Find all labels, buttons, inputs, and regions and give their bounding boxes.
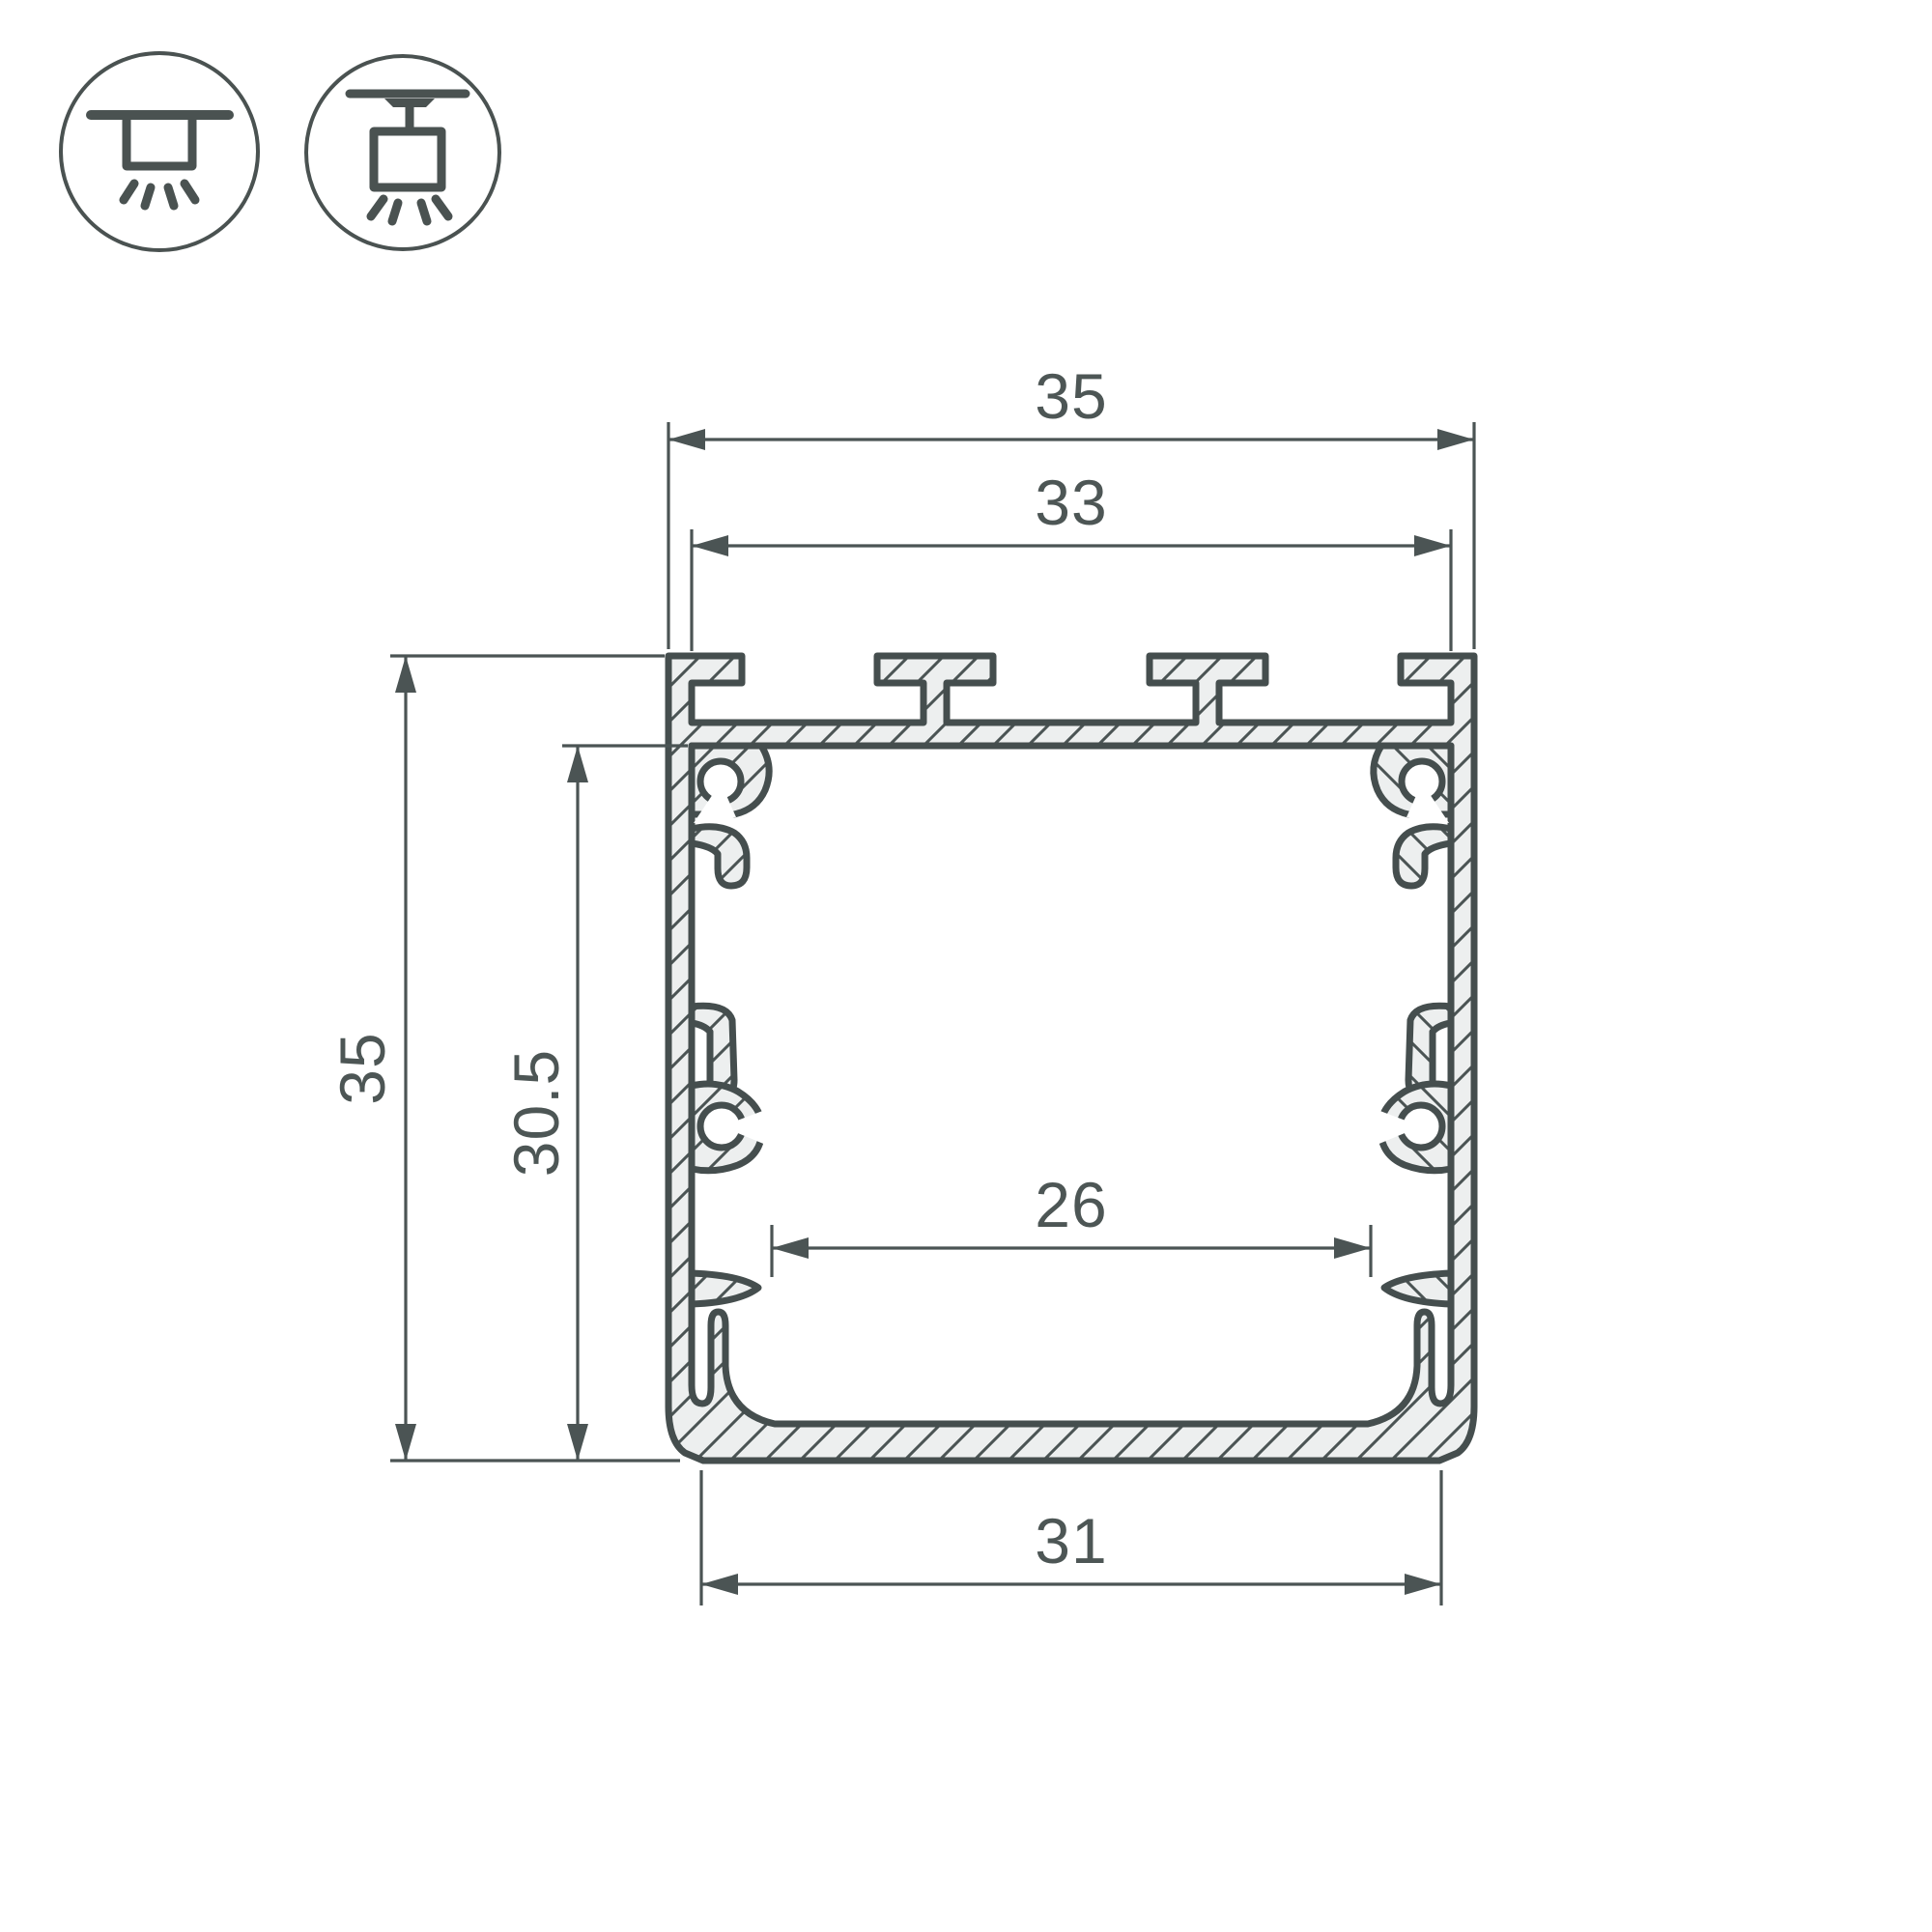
dim-overall-height: 35 bbox=[327, 1032, 398, 1104]
dimension-arrows bbox=[395, 429, 1474, 1595]
wall-inner-features-right bbox=[1370, 746, 1451, 1304]
surface-mount-icon bbox=[61, 53, 258, 250]
profile-cross-section bbox=[668, 656, 1474, 1461]
technical-drawing-page: 35 33 35 30.5 26 31 bbox=[0, 0, 1932, 1932]
dim-inner-height: 30.5 bbox=[500, 1049, 572, 1177]
pendant-mount-icon bbox=[306, 56, 499, 249]
dimension-lines bbox=[406, 440, 1474, 1584]
dim-outer-width: 35 bbox=[1035, 360, 1107, 432]
profile-dimension-drawing: 35 33 35 30.5 26 31 bbox=[0, 0, 1932, 1932]
dim-slot-span-width: 33 bbox=[1035, 467, 1107, 538]
light-rays-icon bbox=[124, 184, 195, 206]
wall-inner-features bbox=[692, 746, 773, 1304]
mounting-icons bbox=[61, 53, 499, 250]
profile-body bbox=[668, 656, 1474, 1461]
dim-bottom-width: 31 bbox=[1035, 1505, 1107, 1577]
light-rays-icon bbox=[371, 199, 448, 221]
dim-inner-width: 26 bbox=[1035, 1169, 1107, 1240]
